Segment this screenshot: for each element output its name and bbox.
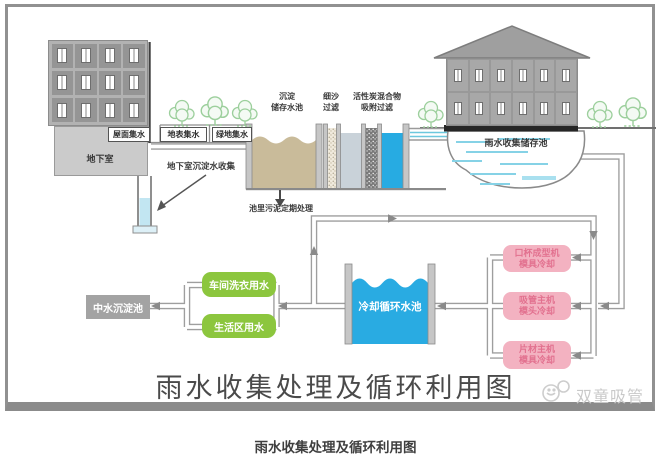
window-panel — [490, 92, 512, 125]
window-panel — [490, 59, 512, 92]
window-panel — [534, 92, 556, 125]
watermark-text: 双童吸管 — [576, 383, 644, 407]
window-panel — [534, 59, 556, 92]
window-panel — [123, 44, 144, 69]
storage-pool-label: 雨水收集储存池 — [471, 136, 561, 149]
carbon-filter-label: 活性炭混合物吸附过滤 — [332, 92, 422, 113]
window-panel — [75, 98, 96, 123]
diagram-title: 雨水收集处理及循环利用图 — [0, 366, 671, 405]
window-panel — [469, 92, 491, 125]
window-panel — [52, 71, 73, 96]
window-panel — [75, 44, 96, 69]
screenshot: 屋面集水 地表集水 绿地集水 地下室 地下室沉淀水收集 沉淀储存水池 细沙过滤 … — [0, 0, 671, 462]
window-panel — [469, 59, 491, 92]
sludge-note-label: 池里污泥定期处理 — [231, 203, 331, 214]
window-panel — [52, 44, 73, 69]
window-panel — [447, 92, 469, 125]
reclaimed-pool-box: 中水沉淀池 — [86, 295, 150, 319]
left-building — [48, 40, 148, 126]
laundry-water-box: 车间洗衣用水 — [202, 272, 276, 297]
basement-label: 地下室 — [86, 152, 113, 165]
window-panel — [123, 98, 144, 123]
cooling-pool-label: 冷却循环水池 — [352, 299, 428, 314]
roof-collection-label: 屋面集水 — [108, 127, 150, 142]
window-panel — [99, 71, 120, 96]
window-panel — [512, 59, 534, 92]
window-panel — [555, 59, 577, 92]
window-panel — [75, 71, 96, 96]
cup-machine-box: 口杯成型机模具冷却 — [503, 245, 571, 272]
window-panel — [555, 92, 577, 125]
living-water-box: 生活区用水 — [202, 314, 276, 338]
greenland-collection-label: 绿地集水 — [212, 127, 252, 142]
window-panel — [52, 98, 73, 123]
window-panel — [447, 59, 469, 92]
window-panel — [123, 71, 144, 96]
window-panel — [99, 98, 120, 123]
sheet-machine-box: 片材主机模具冷却 — [503, 341, 571, 369]
window-panel — [512, 92, 534, 125]
surface-collection-label: 地表集水 — [160, 127, 207, 142]
right-building — [446, 58, 578, 126]
page-caption: 雨水收集处理及循环利用图 — [0, 436, 671, 456]
basement-sediment-label: 地下室沉淀水收集 — [167, 160, 235, 172]
straw-machine-box: 吸管主机模头冷却 — [503, 292, 571, 320]
window-panel — [99, 44, 120, 69]
